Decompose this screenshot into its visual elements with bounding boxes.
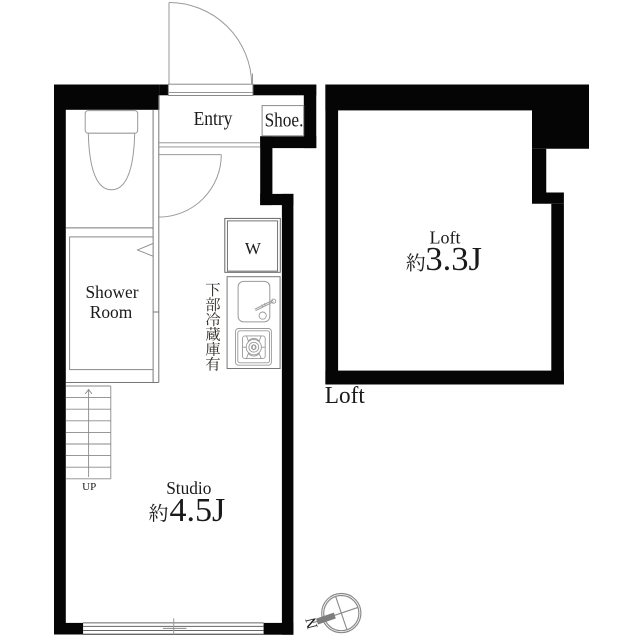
svg-text:3.3J: 3.3J	[425, 241, 482, 278]
svg-text:Loft: Loft	[325, 383, 365, 409]
svg-text:N: N	[302, 616, 321, 631]
svg-text:UP: UP	[82, 481, 96, 493]
svg-text:Entry: Entry	[194, 108, 233, 130]
svg-text:Shoe.: Shoe.	[265, 110, 304, 132]
svg-text:4.5J: 4.5J	[170, 492, 226, 529]
svg-text:Shower: Shower	[86, 282, 139, 302]
svg-text:W: W	[245, 239, 262, 258]
svg-text:Room: Room	[90, 302, 133, 322]
